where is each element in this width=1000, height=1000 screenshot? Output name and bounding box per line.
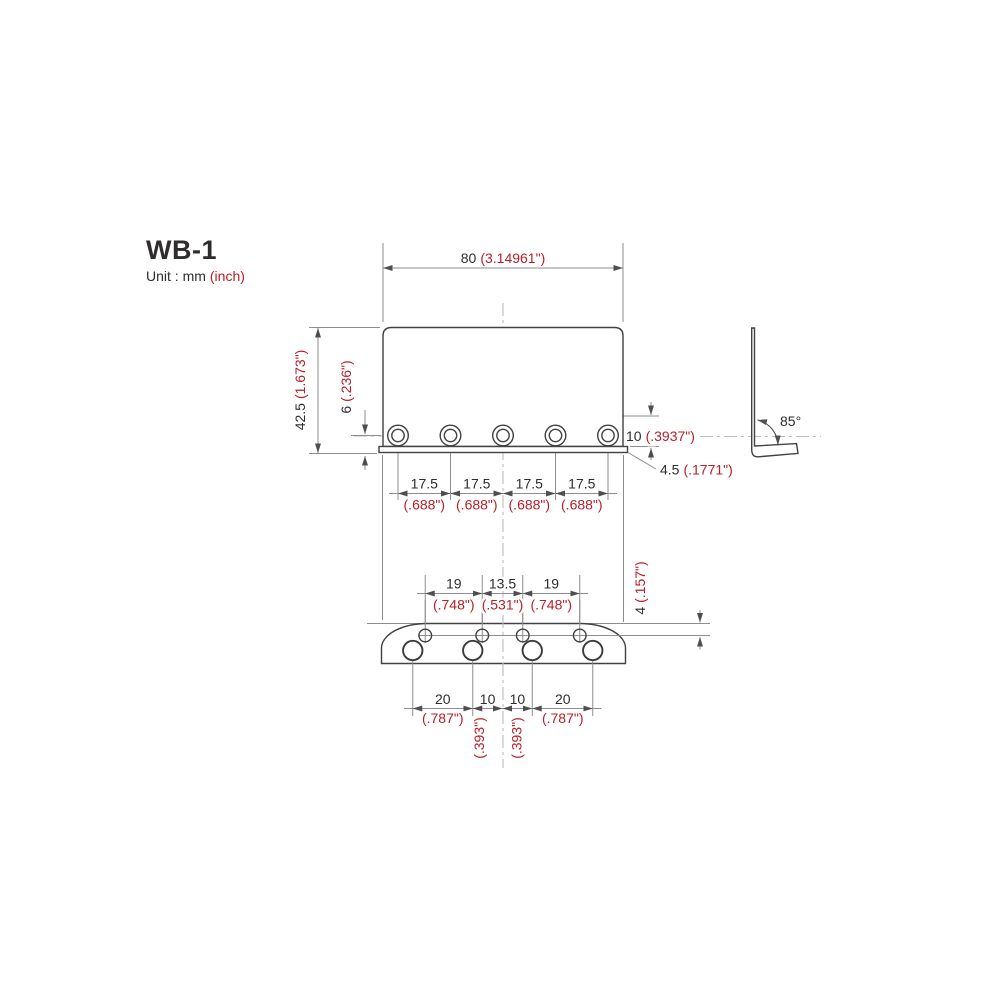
dim-offset6-mm: 6 — [338, 406, 354, 414]
dim-flange10-mm: 10 — [626, 428, 642, 444]
unit-note: Unit : mm(inch) — [146, 268, 245, 284]
adjuster-spacing-inch: (.748") — [530, 597, 572, 613]
header: WB-1 Unit : mm(inch) — [146, 235, 245, 284]
dim-overall-height: 42.5(1.673") — [292, 328, 318, 453]
bent-flange-edge — [379, 447, 628, 453]
string-spacing-inch: (.393") — [471, 717, 487, 759]
dim-flange-lip: 4.5(.1771") — [628, 453, 733, 478]
string-spacing-mm: 10 — [510, 691, 526, 707]
dim-flange10-inch: (.3937") — [646, 428, 695, 444]
screw-spacing-inch: (.688") — [509, 497, 551, 513]
dim-edge-to-adjuster: 4(.157") — [632, 561, 700, 649]
adjuster-spacing-mm: 19 — [543, 576, 559, 592]
svg-text:4.5(.1771"): 4.5(.1771") — [660, 462, 733, 478]
string-spacing-mm: 20 — [435, 691, 451, 707]
dim-flange-height: 10(.3937") — [626, 402, 695, 460]
dim-lip-mm: 4.5 — [660, 462, 680, 478]
string-spacing-inch: (.393") — [509, 717, 525, 759]
bend-angle-label: 85° — [780, 413, 801, 429]
screw-spacing-mm: 17.5 — [568, 476, 595, 492]
screw-spacing-mm: 17.5 — [516, 476, 543, 492]
dim-overall-width: 80(3.14961") — [383, 250, 623, 268]
dim-string-spacing: 20 (.787") 10 (.393") 10 (.393") 20 (.78… — [404, 691, 602, 759]
string-spacing-mm: 20 — [555, 691, 571, 707]
page-title: WB-1 — [146, 235, 217, 265]
dim-width-inch: (3.14961") — [480, 250, 545, 266]
svg-text:80(3.14961"): 80(3.14961") — [461, 250, 545, 266]
screw-spacing-inch: (.688") — [456, 497, 498, 513]
dim-offset6-inch: (.236") — [338, 360, 354, 402]
dim-height-mm: 42.5 — [292, 403, 308, 430]
dim-bend-angle: 85° — [780, 413, 801, 429]
string-spacing-inch: (.787") — [542, 710, 584, 726]
bend-angle-arc — [758, 420, 779, 445]
side-view — [752, 328, 798, 457]
svg-text:10(.3937"): 10(.3937") — [626, 428, 695, 444]
screw-spacing-inch: (.688") — [561, 497, 603, 513]
dim-width-mm: 80 — [461, 250, 477, 266]
adjuster-spacing-mm: 19 — [446, 576, 462, 592]
unit-inch-label: (inch) — [210, 268, 245, 284]
svg-text:4(.157"): 4(.157") — [632, 561, 648, 614]
drawing-canvas: WB-1 Unit : mm(inch) — [0, 0, 1000, 1000]
string-spacing-inch: (.787") — [422, 710, 464, 726]
adjuster-spacing-inch: (.531") — [482, 597, 524, 613]
dim-edge4-inch: (.157") — [632, 561, 648, 603]
svg-text:6(.236"): 6(.236") — [338, 360, 354, 413]
dim-height-inch: (1.673") — [292, 350, 308, 399]
dim-adjuster-spacing: 19 (.748") 13.5 (.531") 19 (.748") — [417, 576, 588, 613]
dim-lip-inch: (.1771") — [683, 462, 732, 478]
unit-label: Unit : mm — [146, 268, 206, 284]
screw-spacing-mm: 17.5 — [463, 476, 490, 492]
side-profile-outline — [752, 328, 798, 457]
dim-edge4-mm: 4 — [632, 607, 648, 615]
adjuster-spacing-mm: 13.5 — [489, 576, 516, 592]
screw-spacing-inch: (.688") — [404, 497, 446, 513]
adjuster-spacing-inch: (.748") — [433, 597, 475, 613]
svg-text:42.5(1.673"): 42.5(1.673") — [292, 350, 308, 431]
screw-spacing-mm: 17.5 — [411, 476, 438, 492]
string-spacing-mm: 10 — [480, 691, 496, 707]
top-view — [379, 328, 628, 453]
